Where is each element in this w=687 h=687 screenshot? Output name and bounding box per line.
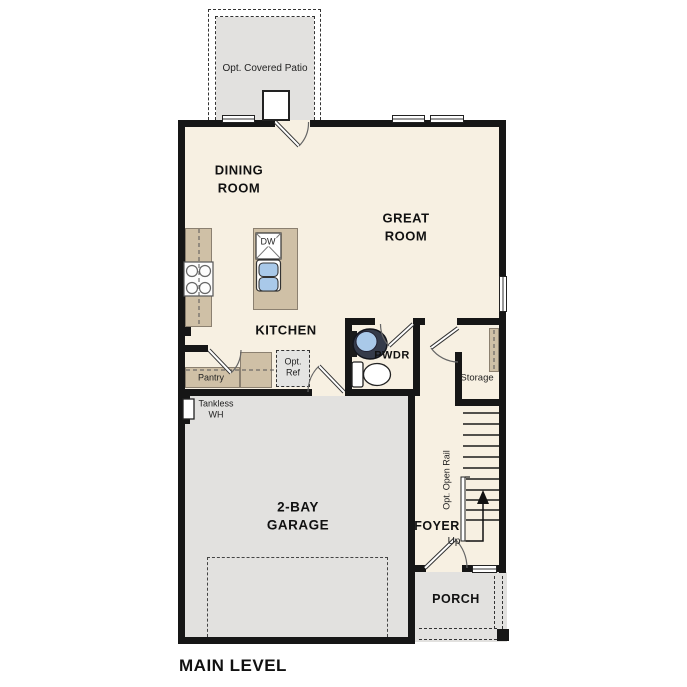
kitchen-counter-left (185, 228, 212, 327)
wall-pwdr-right (413, 318, 420, 396)
dining-room-label-1: DINING (215, 164, 264, 177)
wall-garage-bottom (178, 637, 415, 644)
dishwasher-label: DW (260, 238, 277, 247)
patio-door-threshold (262, 90, 290, 121)
opt-ref-label-1: Opt. (284, 358, 301, 367)
porch-dash-v1 (494, 576, 495, 629)
counter-by-ref (240, 352, 272, 388)
wall-greatroom-bottom-c (457, 318, 506, 325)
wall-greatroom-bottom-b (413, 318, 425, 325)
kitchen-label: KITCHEN (255, 324, 316, 337)
wall-pantry-top (185, 345, 208, 352)
powder-label: PWDR (374, 351, 410, 362)
window-front (472, 565, 497, 573)
porch-label: PORCH (432, 593, 480, 606)
wall-kitchen-stub (178, 327, 191, 336)
tankless-label-1: Tankless (198, 400, 233, 409)
storage-rod (489, 328, 499, 372)
garage-label-1: 2-BAY (277, 500, 319, 514)
up-label: Up (448, 537, 461, 547)
pantry-label: Pantry (198, 374, 224, 383)
open-rail-label: Opt. Open Rail (443, 450, 452, 510)
wall-right (499, 120, 506, 573)
dining-room-label-2: ROOM (218, 182, 260, 195)
wall-garage-right (408, 389, 415, 644)
garage-label-2: GARAGE (267, 518, 329, 532)
window-dining (222, 115, 255, 123)
porch-dash-h2 (419, 639, 497, 640)
wall-foyer-front-a (408, 565, 426, 572)
floor-plan: Opt. Covered Patio DINING ROOM GREAT ROO… (0, 0, 687, 687)
opt-ref-label-2: Ref (286, 369, 300, 378)
wall-wh-chunk (178, 390, 190, 424)
porch-dash-h1 (419, 628, 497, 629)
storage-label: Storage (460, 373, 493, 383)
porch-dash-v2 (502, 576, 503, 629)
wall-pwdr-left (345, 318, 352, 396)
window-great-2 (430, 115, 464, 123)
patio-label: Opt. Covered Patio (222, 64, 307, 74)
tankless-label-2: WH (209, 411, 224, 420)
wall-greatroom-bottom-a (345, 318, 375, 325)
wall-storage-bottom (455, 399, 506, 406)
window-great-right (499, 276, 507, 312)
wall-garage-top-left (178, 389, 312, 396)
plan-title: MAIN LEVEL (179, 656, 287, 676)
great-room-label-2: ROOM (385, 230, 427, 243)
porch-post (497, 629, 509, 641)
window-great-1 (392, 115, 425, 123)
garage-door-outline (207, 557, 388, 637)
wall-left (178, 120, 185, 644)
foyer-label: FOYER (414, 520, 460, 533)
great-room-label-1: GREAT (382, 212, 429, 225)
